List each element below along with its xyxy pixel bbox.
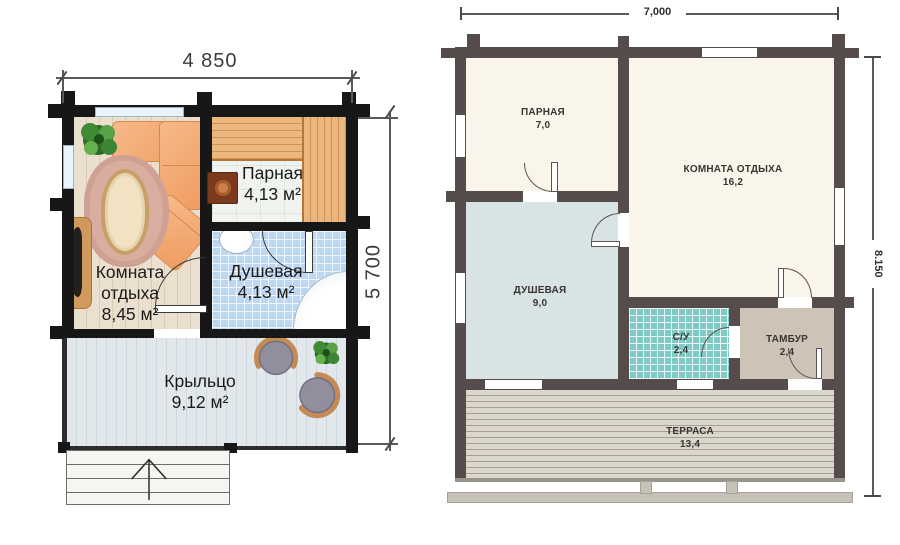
wall (618, 58, 629, 202)
floor-plans-canvas: Парная 4,13 м² Комната отдыха 8,45 м² Ду… (0, 0, 900, 545)
window (834, 188, 845, 245)
dimension-line (686, 13, 838, 15)
room-label-vestibule: ТАМБУР 2,4 (740, 334, 834, 359)
room-area: 9,0 (480, 298, 600, 311)
log-knob (618, 36, 629, 47)
room-area: 16,2 (633, 177, 833, 190)
railing-post (726, 481, 738, 494)
room-name: КОМНАТА ОТДЫХА (633, 164, 833, 177)
room-label-rest: КОМНАТА ОТДЫХА 16,2 (633, 164, 833, 189)
right-floor-plan: ПАРНАЯ 7,0 КОМНАТА ОТДЫХА 16,2 ДУШЕВАЯ 9… (0, 0, 900, 545)
door-gap (778, 297, 812, 308)
log-knob (845, 48, 859, 58)
room-name: С/У (631, 332, 731, 345)
room-label-terrace: ТЕРРАСА 13,4 (610, 426, 770, 451)
log-knob (845, 297, 854, 308)
log-knob (832, 34, 845, 47)
log-knob (441, 48, 455, 58)
room-name: ДУШЕВАЯ (480, 285, 600, 298)
window (485, 379, 542, 390)
room-name: ПАРНАЯ (483, 107, 603, 120)
door-leaf (551, 162, 558, 192)
terrace-post (834, 390, 845, 480)
dimension-tick (864, 56, 881, 58)
room-label-wc: С/У 2,4 (631, 332, 731, 357)
room-name: ТЕРРАСА (610, 426, 770, 439)
room-area: 2,4 (740, 347, 834, 360)
dimension-tick (460, 7, 462, 20)
window (702, 47, 757, 58)
dimension-height: 8.150 (862, 240, 884, 288)
door-leaf (591, 241, 620, 247)
window (455, 273, 466, 323)
railing-post (640, 481, 652, 494)
dimension-line (461, 13, 629, 15)
window (677, 379, 713, 390)
log-knob (467, 34, 480, 47)
dimension-line (872, 284, 874, 497)
dimension-tick (837, 7, 839, 20)
dimension-line (872, 57, 874, 240)
window (455, 115, 466, 157)
room-area: 7,0 (483, 120, 603, 133)
dimension-tick (864, 495, 881, 497)
room-area: 13,4 (610, 439, 770, 452)
room-label-shower: ДУШЕВАЯ 9,0 (480, 285, 600, 310)
wall (455, 47, 845, 58)
room-label-steam: ПАРНАЯ 7,0 (483, 107, 603, 132)
wall (455, 58, 466, 379)
room-name: ТАМБУР (740, 334, 834, 347)
log-knob (446, 191, 455, 202)
door-gap (788, 379, 822, 390)
terrace-post (455, 390, 466, 480)
dimension-width: 7,000 (629, 6, 686, 18)
room-area: 2,4 (631, 345, 731, 358)
door-gap (523, 191, 557, 202)
